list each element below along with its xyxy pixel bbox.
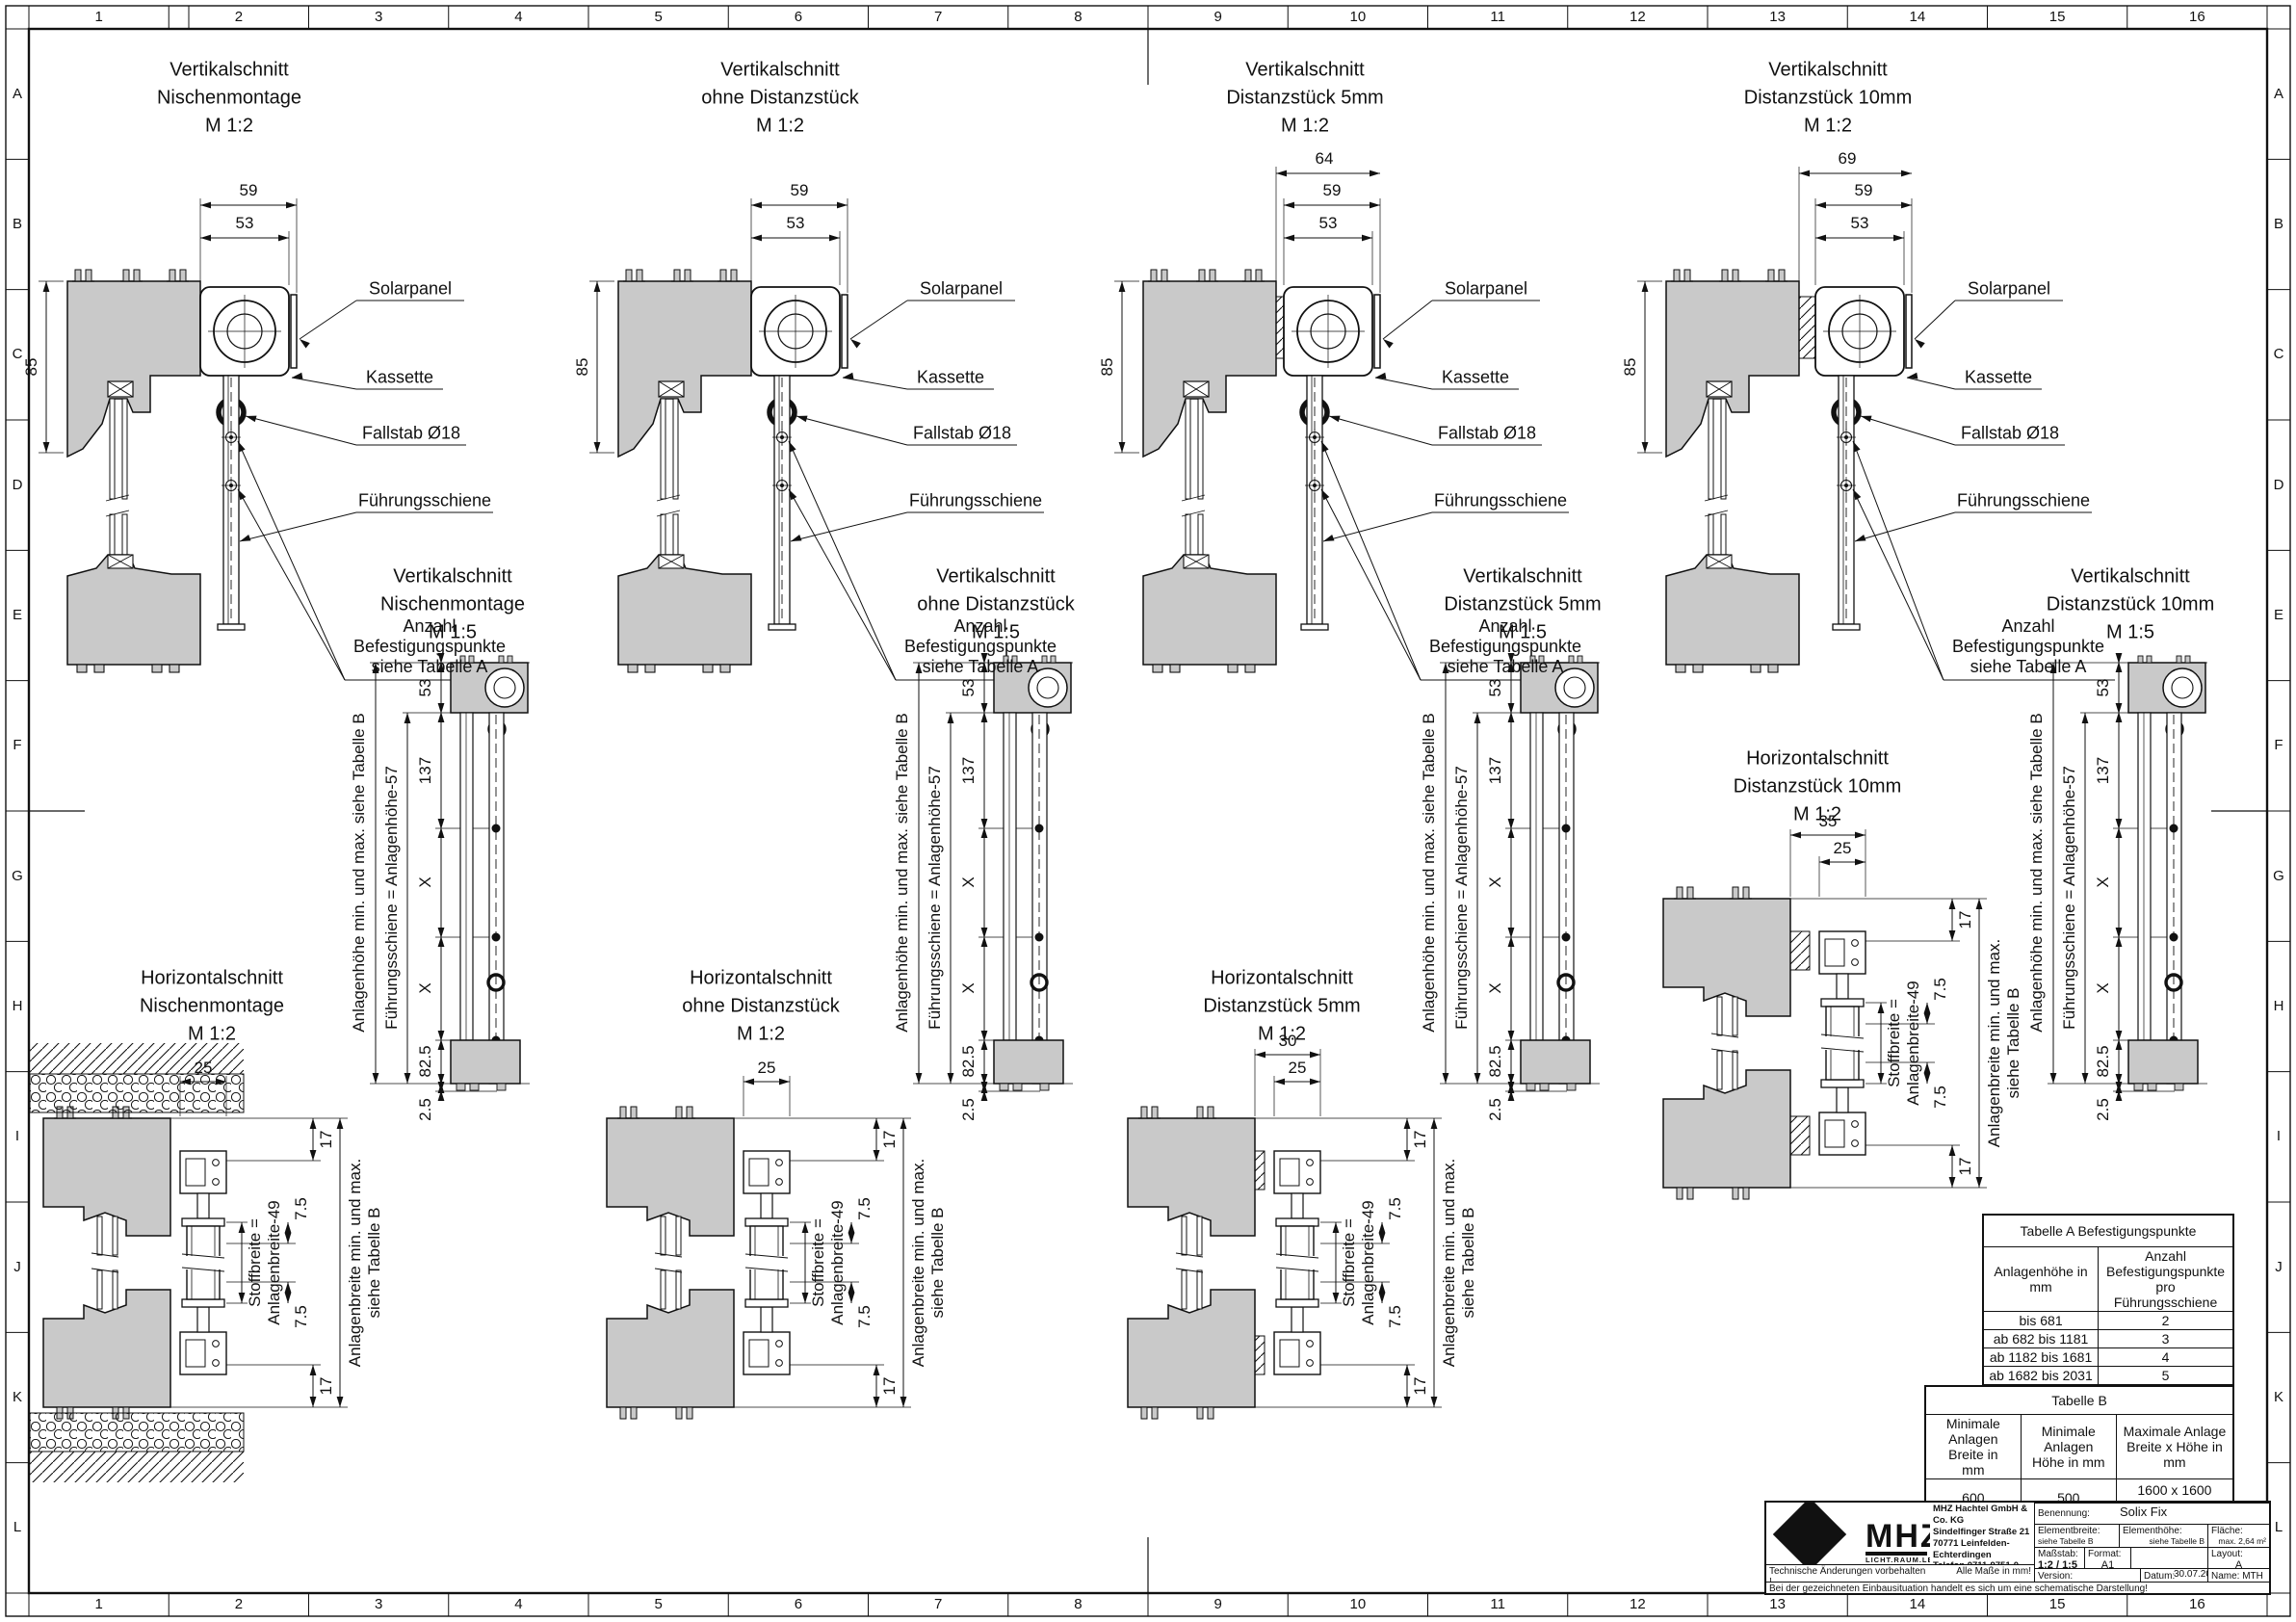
dim-label: 2.5 bbox=[2094, 1098, 2113, 1121]
name-label: Name: MTH bbox=[2211, 1571, 2263, 1582]
dim-label: 53 bbox=[959, 679, 978, 697]
section-title: Vertikalschnitt Distanzstück 10mm M 1:2 bbox=[1744, 57, 1913, 141]
logo-wordmark: MHZ bbox=[1865, 1521, 1927, 1556]
grid-row-label: I bbox=[2277, 1128, 2281, 1145]
dim-label: 7.5 bbox=[292, 1305, 311, 1328]
section-title: Vertikalschnitt ohne Distanzstück M 1:5 bbox=[917, 563, 1074, 647]
label-stoffbreite-side: Stoffbreite = Anlagenbreite-49 bbox=[1885, 981, 1923, 1105]
label-fuehrungsschiene: Führungsschiene bbox=[909, 490, 1042, 510]
dim-label: X bbox=[416, 982, 435, 993]
grid-row-label: K bbox=[2274, 1389, 2283, 1406]
dim-label: 53 bbox=[1319, 214, 1338, 233]
label-fallstab: Fallstab Ø18 bbox=[913, 423, 1011, 443]
mhz-logo-icon bbox=[1773, 1503, 1846, 1564]
label-anlagenhoehe-side: Anlagenhöhe min. und max. siehe Tabelle … bbox=[893, 713, 912, 1032]
grid-col-label: 4 bbox=[514, 9, 522, 26]
grid-row-label: F bbox=[2274, 737, 2283, 754]
grid-col-label: 12 bbox=[1630, 9, 1646, 26]
format-value: A1 bbox=[2088, 1559, 2127, 1568]
label-anlagenbreite-side: Anlagenbreite min. und max. siehe Tabell… bbox=[909, 1159, 948, 1367]
dim-label: 7.5 bbox=[855, 1305, 874, 1328]
grid-col-label: 7 bbox=[934, 9, 942, 26]
dim-label: 7.5 bbox=[292, 1197, 311, 1220]
grid-col-label: 5 bbox=[654, 1596, 662, 1613]
logo-text-cell: MHZ LICHT.RAUM.LEBEN. bbox=[1863, 1503, 1930, 1564]
grid-col-label: 5 bbox=[654, 9, 662, 26]
dim-label: 17 bbox=[1411, 1131, 1430, 1149]
label-fuehrung-side: Führungsschiene = Anlagenhöhe-57 bbox=[2060, 766, 2079, 1030]
grid-col-label: 9 bbox=[1213, 9, 1221, 26]
format-label: Format: bbox=[2088, 1549, 2127, 1559]
grid-col-label: 10 bbox=[1350, 1596, 1367, 1613]
dim-label: 59 bbox=[1855, 181, 1873, 200]
table-cell: 5 bbox=[2099, 1367, 2233, 1385]
dim-label: X bbox=[416, 876, 435, 887]
dim-label: 85 bbox=[1621, 358, 1640, 377]
flaeche-label: Fläche: bbox=[2211, 1526, 2266, 1536]
table-b: Tabelle B Minimale Anlagen Breite in mm … bbox=[1924, 1385, 2234, 1519]
dim-label: 7.5 bbox=[1931, 978, 1950, 1001]
field-elementhoehe: Elementhöhe: siehe Tabelle B bbox=[2119, 1524, 2207, 1547]
dim-label: X bbox=[1486, 982, 1505, 993]
grid-row-label: D bbox=[2274, 477, 2284, 494]
dim-label: X bbox=[959, 876, 978, 887]
section-title: Vertikalschnitt Distanzstück 5mm M 1:5 bbox=[1444, 563, 1601, 647]
dim-label: 53 bbox=[1851, 214, 1869, 233]
grid-col-label: 12 bbox=[1630, 1596, 1646, 1613]
label-fuehrung-side: Führungsschiene = Anlagenhöhe-57 bbox=[382, 766, 402, 1030]
table-a-header: Anzahl Befestigungspunkte pro Führungssc… bbox=[2099, 1247, 2233, 1312]
dim-label: 17 bbox=[1956, 911, 1975, 929]
version-label: Version: bbox=[2038, 1571, 2073, 1582]
dim-label: 25 bbox=[195, 1059, 213, 1078]
label-kassette: Kassette bbox=[917, 367, 984, 387]
dim-label: X bbox=[959, 982, 978, 993]
grid-col-label: 11 bbox=[1490, 9, 1505, 26]
label-fuehrung-side: Führungsschiene = Anlagenhöhe-57 bbox=[926, 766, 945, 1030]
table-cell: ab 682 bis 1181 bbox=[1983, 1330, 2099, 1348]
elementbreite-label: Elementbreite: bbox=[2038, 1526, 2116, 1536]
dim-label: 2.5 bbox=[416, 1098, 435, 1121]
table-a-header: Anlagenhöhe in mm bbox=[1983, 1247, 2099, 1312]
dim-label: 69 bbox=[1839, 149, 1857, 169]
grid-row-label: A bbox=[2274, 86, 2283, 103]
grid-row-label: B bbox=[13, 216, 22, 233]
grid-col-label: 7 bbox=[934, 1596, 942, 1613]
note-mm: Alle Maße in mm! bbox=[1930, 1564, 2034, 1582]
label-anlagenbreite-side: Anlagenbreite min. und max. siehe Tabell… bbox=[1985, 939, 2023, 1147]
field-elementbreite: Elementbreite: siehe Tabelle B bbox=[2034, 1524, 2119, 1547]
dim-label: 59 bbox=[791, 181, 809, 200]
label-fuehrungsschiene: Führungsschiene bbox=[358, 490, 491, 510]
section-title: Vertikalschnitt Nischenmontage M 1:2 bbox=[157, 57, 301, 141]
dim-label: 2.5 bbox=[1486, 1098, 1505, 1121]
table-b-header: Minimale Anlagen Höhe in mm bbox=[2021, 1415, 2116, 1479]
dim-label: 82.5 bbox=[1486, 1045, 1505, 1077]
label-fallstab: Fallstab Ø18 bbox=[1961, 423, 2059, 443]
note-tech: Technische Änderungen vorbehalten ! bbox=[1766, 1564, 1930, 1582]
dim-label: 59 bbox=[1323, 181, 1342, 200]
label-solarpanel: Solarpanel bbox=[369, 278, 452, 299]
grid-col-label: 13 bbox=[1769, 9, 1786, 26]
dim-label: 25 bbox=[1834, 839, 1852, 858]
elementbreite-value: siehe Tabelle B bbox=[2038, 1536, 2116, 1546]
benennung-label: Benennung: bbox=[2038, 1508, 2090, 1519]
label-solarpanel: Solarpanel bbox=[1445, 278, 1527, 299]
dim-label: 30 bbox=[1279, 1032, 1297, 1051]
label-kassette: Kassette bbox=[366, 367, 433, 387]
table-b-title: Tabelle B bbox=[1925, 1386, 2233, 1415]
benennung-value: Solix Fix bbox=[2120, 1504, 2167, 1519]
table-b-header: Maximale Anlage Breite x Höhe in mm bbox=[2116, 1415, 2233, 1479]
label-solarpanel: Solarpanel bbox=[920, 278, 1003, 299]
grid-row-label: B bbox=[2274, 216, 2283, 233]
grid-row-label: F bbox=[13, 737, 21, 754]
section-title: Horizontalschnitt Nischenmontage M 1:2 bbox=[140, 965, 284, 1049]
grid-col-label: 6 bbox=[795, 9, 802, 26]
dim-label: 7.5 bbox=[1931, 1086, 1950, 1109]
logo-tagline: LICHT.RAUM.LEBEN. bbox=[1865, 1556, 1927, 1564]
label-anlagenbreite-side: Anlagenbreite min. und max. siehe Tabell… bbox=[1440, 1159, 1478, 1367]
table-cell: ab 1182 bis 1681 bbox=[1983, 1348, 2099, 1367]
grid-row-label: E bbox=[2274, 607, 2283, 624]
field-format: Format: A1 bbox=[2084, 1547, 2130, 1568]
grid-col-label: 14 bbox=[1910, 1596, 1926, 1613]
title-block: MHZ LICHT.RAUM.LEBEN. MHZ Hachtel GmbH &… bbox=[1764, 1501, 2271, 1595]
dim-label: X bbox=[1486, 876, 1505, 887]
dim-label: 7.5 bbox=[1386, 1197, 1405, 1220]
grid-col-label: 3 bbox=[375, 1596, 382, 1613]
field-massstab: Maßstab: 1:2 / 1:5 bbox=[2034, 1547, 2084, 1568]
dim-label: 59 bbox=[240, 181, 258, 200]
label-fuehrung-side: Führungsschiene = Anlagenhöhe-57 bbox=[1452, 766, 1472, 1030]
grid-col-label: 8 bbox=[1074, 1596, 1082, 1613]
dim-label: 85 bbox=[1098, 358, 1117, 377]
grid-col-label: 15 bbox=[2049, 9, 2066, 26]
dim-label: 137 bbox=[2094, 757, 2113, 784]
layout-value: A bbox=[2211, 1559, 2266, 1568]
table-cell: 3 bbox=[2099, 1330, 2233, 1348]
dim-label: 53 bbox=[236, 214, 254, 233]
grid-col-label: 1 bbox=[94, 1596, 102, 1613]
label-anlagenbreite-side: Anlagenbreite min. und max. siehe Tabell… bbox=[346, 1159, 384, 1367]
dim-label: 7.5 bbox=[855, 1197, 874, 1220]
dim-label: X bbox=[2094, 982, 2113, 993]
dim-label: 64 bbox=[1316, 149, 1334, 169]
dim-label: 17 bbox=[317, 1131, 336, 1149]
dim-label: 82.5 bbox=[959, 1045, 978, 1077]
grid-col-label: 14 bbox=[1910, 9, 1926, 26]
flaeche-value: max. 2,64 m² bbox=[2211, 1536, 2266, 1546]
section-title: Vertikalschnitt Distanzstück 10mm M 1:5 bbox=[2047, 563, 2215, 647]
grid-col-label: 2 bbox=[235, 9, 243, 26]
dim-label: 53 bbox=[787, 214, 805, 233]
grid-col-label: 6 bbox=[795, 1596, 802, 1613]
label-kassette: Kassette bbox=[1442, 367, 1509, 387]
grid-col-label: 4 bbox=[514, 1596, 522, 1613]
dim-label: 85 bbox=[573, 358, 592, 377]
layout-label: Layout: bbox=[2211, 1549, 2266, 1559]
grid-row-label: G bbox=[2273, 868, 2284, 885]
grid-row-label: K bbox=[13, 1389, 22, 1406]
dim-label: 25 bbox=[1289, 1059, 1307, 1078]
elementhoehe-label: Elementhöhe: bbox=[2123, 1526, 2205, 1536]
label-anlagenhoehe-side: Anlagenhöhe min. und max. siehe Tabelle … bbox=[350, 713, 369, 1032]
grid-row-label: G bbox=[12, 868, 23, 885]
grid-row-label: L bbox=[2275, 1519, 2283, 1536]
massstab-label: Maßstab: bbox=[2038, 1549, 2081, 1559]
grid-col-label: 10 bbox=[1350, 9, 1367, 26]
grid-row-label: D bbox=[13, 477, 23, 494]
label-anlagenhoehe-side: Anlagenhöhe min. und max. siehe Tabelle … bbox=[1420, 713, 1439, 1032]
table-b-header: Minimale Anlagen Breite in mm bbox=[1925, 1415, 2021, 1479]
section-title: Vertikalschnitt Nischenmontage M 1:5 bbox=[380, 563, 525, 647]
grid-row-label: J bbox=[13, 1259, 21, 1276]
dim-label: 17 bbox=[1956, 1158, 1975, 1176]
label-stoffbreite-side: Stoffbreite = Anlagenbreite-49 bbox=[1340, 1200, 1378, 1324]
dim-label: 53 bbox=[1486, 679, 1505, 697]
datum-value: 30.07.2021 bbox=[2171, 1568, 2207, 1582]
label-stoffbreite-side: Stoffbreite = Anlagenbreite-49 bbox=[809, 1200, 848, 1324]
label-solarpanel: Solarpanel bbox=[1968, 278, 2050, 299]
label-anlagenhoehe-side: Anlagenhöhe min. und max. siehe Tabelle … bbox=[2027, 713, 2047, 1032]
grid-col-label: 15 bbox=[2049, 1596, 2066, 1613]
field-layout: Layout: A bbox=[2207, 1547, 2269, 1568]
dim-label: 82.5 bbox=[416, 1045, 435, 1077]
grid-row-label: I bbox=[15, 1128, 19, 1145]
grid-row-label: L bbox=[13, 1519, 21, 1536]
dim-label: 17 bbox=[880, 1131, 900, 1149]
dim-label: 137 bbox=[1486, 757, 1505, 784]
massstab-value: 1:2 / 1:5 bbox=[2038, 1559, 2081, 1568]
grid-col-label: 16 bbox=[2189, 1596, 2205, 1613]
dim-label: 17 bbox=[317, 1377, 336, 1396]
dim-label: 137 bbox=[959, 757, 978, 784]
grid-row-label: H bbox=[13, 998, 23, 1015]
grid-row-label: C bbox=[13, 346, 23, 363]
dim-label: 17 bbox=[1411, 1377, 1430, 1396]
table-cell: ab 1682 bis 2031 bbox=[1983, 1367, 2099, 1385]
grid-row-label: A bbox=[13, 86, 22, 103]
label-kassette: Kassette bbox=[1965, 367, 2032, 387]
field-name: Name: MTH bbox=[2207, 1568, 2269, 1582]
dim-label: 7.5 bbox=[1386, 1305, 1405, 1328]
section-title: Vertikalschnitt ohne Distanzstück M 1:2 bbox=[701, 57, 858, 141]
dim-label: 35 bbox=[1819, 812, 1838, 831]
label-fallstab: Fallstab Ø18 bbox=[362, 423, 460, 443]
company-address: MHZ Hachtel GmbH & Co. KG Sindelfinger S… bbox=[1930, 1503, 2034, 1564]
note-schematic: Bei der gezeichneten Einbausituation han… bbox=[1766, 1582, 2269, 1593]
label-fallstab: Fallstab Ø18 bbox=[1438, 423, 1536, 443]
field-empty bbox=[2130, 1547, 2207, 1568]
dim-label: 25 bbox=[758, 1059, 776, 1078]
logo-cell bbox=[1766, 1503, 1863, 1564]
dim-label: 2.5 bbox=[959, 1098, 978, 1121]
dim-label: 82.5 bbox=[2094, 1045, 2113, 1077]
section-title: Horizontalschnitt Distanzstück 10mm M 1:… bbox=[1734, 746, 1902, 829]
section-title: Horizontalschnitt ohne Distanzstück M 1:… bbox=[682, 965, 839, 1049]
drawing-canvas bbox=[0, 0, 2296, 1622]
section-title: Vertikalschnitt Distanzstück 5mm M 1:2 bbox=[1226, 57, 1383, 141]
elementhoehe-value: siehe Tabelle B bbox=[2123, 1536, 2205, 1546]
label-stoffbreite-side: Stoffbreite = Anlagenbreite-49 bbox=[246, 1200, 284, 1324]
field-flaeche: Fläche: max. 2,64 m² bbox=[2207, 1524, 2269, 1547]
table-befestigungspunkte: Tabelle A Befestigungspunkte Anlagenhöhe… bbox=[1982, 1214, 2234, 1404]
table-a-title: Tabelle A Befestigungspunkte bbox=[1983, 1215, 2233, 1247]
grid-row-label: E bbox=[13, 607, 22, 624]
dim-label: 17 bbox=[880, 1377, 900, 1396]
label-fuehrungsschiene: Führungsschiene bbox=[1434, 490, 1567, 510]
dim-label: 53 bbox=[416, 679, 435, 697]
label-fuehrungsschiene: Führungsschiene bbox=[1957, 490, 2090, 510]
table-cell: 2 bbox=[2099, 1312, 2233, 1330]
grid-row-label: J bbox=[2275, 1259, 2283, 1276]
table-cell: bis 681 bbox=[1983, 1312, 2099, 1330]
grid-col-label: 16 bbox=[2189, 9, 2205, 26]
table-cell: 4 bbox=[2099, 1348, 2233, 1367]
grid-col-label: 8 bbox=[1074, 9, 1082, 26]
dim-label: 137 bbox=[416, 757, 435, 784]
grid-row-label: H bbox=[2274, 998, 2284, 1015]
grid-col-label: 11 bbox=[1490, 1596, 1505, 1613]
grid-col-label: 9 bbox=[1213, 1596, 1221, 1613]
field-benennung: Benennung: Solix Fix bbox=[2034, 1503, 2269, 1524]
grid-col-label: 1 bbox=[94, 9, 102, 26]
grid-col-label: 2 bbox=[235, 1596, 243, 1613]
dim-label: X bbox=[2094, 876, 2113, 887]
grid-col-label: 13 bbox=[1769, 1596, 1786, 1613]
grid-row-label: C bbox=[2274, 346, 2284, 363]
dim-label: 85 bbox=[22, 358, 41, 377]
cad-sheet: 1122334455667788991010111112121313141415… bbox=[0, 0, 2296, 1622]
dim-label: 53 bbox=[2094, 679, 2113, 697]
field-version: Version: bbox=[2034, 1568, 2140, 1582]
grid-col-label: 3 bbox=[375, 9, 382, 26]
